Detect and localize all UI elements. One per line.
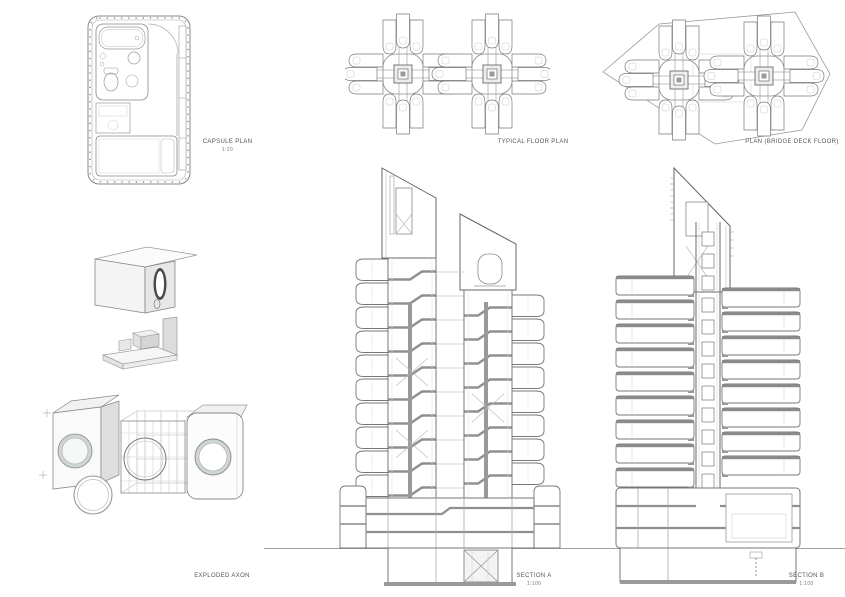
section-b-drawing: [608, 162, 808, 594]
bridge-deck-plan-label: PLAN (BRIDGE DECK FLOOR): [737, 139, 845, 147]
drawing-sheet: CAPSULE PLAN 1:20 TYPICAL FLOOR PLAN PLA…: [0, 0, 845, 597]
typical-floor-plan-label: TYPICAL FLOOR PLAN: [483, 139, 583, 147]
capsule-plan-label: CAPSULE PLAN 1:20: [200, 139, 255, 153]
exploded-axon-drawing: [35, 235, 250, 520]
capsule-plan-drawing: [75, 8, 205, 193]
bridge-deck-plan-drawing: [597, 6, 842, 148]
section-b-label: SECTION B 1:100: [774, 573, 839, 587]
typical-floor-plan-drawing: [345, 12, 550, 137]
section-a-label: SECTION A 1:100: [499, 573, 569, 587]
section-a-drawing: [332, 162, 568, 594]
exploded-axon-label: EXPLODED AXON: [187, 573, 257, 581]
